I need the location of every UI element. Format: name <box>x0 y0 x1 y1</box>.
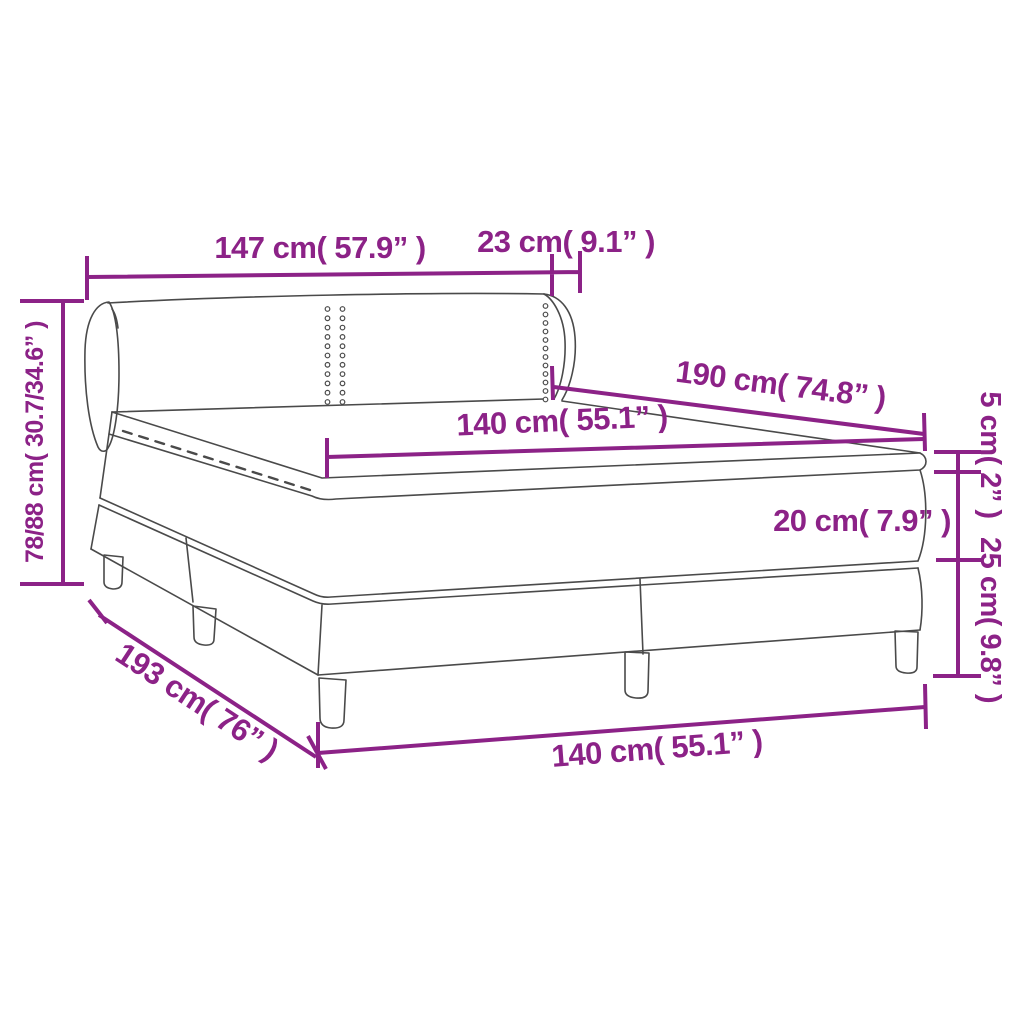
dim-height-stack-bracket <box>933 452 981 676</box>
stud-dot <box>340 325 345 330</box>
stud-dot <box>543 372 548 377</box>
stud-dot <box>340 335 345 340</box>
stud-dot <box>325 316 330 321</box>
base-front-seam <box>640 579 643 654</box>
stud-dot <box>543 355 548 360</box>
label-base-height: 25 cm( 9.8” ) <box>974 537 1006 703</box>
bed-leg <box>625 652 649 698</box>
label-headboard-width: 147 cm( 57.9” ) <box>214 230 425 265</box>
stud-dot <box>340 372 345 377</box>
stud-dot <box>340 381 345 386</box>
label-topper-height: 5 cm( 2” ) <box>974 391 1006 518</box>
stud-dot <box>543 346 548 351</box>
stud-dot <box>543 397 548 402</box>
stud-dot <box>325 353 330 358</box>
stud-dot <box>340 344 345 349</box>
stud-dot <box>543 321 548 326</box>
stud-dot <box>325 325 330 330</box>
stud-dot <box>340 363 345 368</box>
base-left-seam <box>186 538 193 602</box>
bed-leg <box>104 555 123 589</box>
bed-leg <box>895 631 918 673</box>
bed-dimension-diagram: 147 cm( 57.9” ) 23 cm( 9.1” ) 78/88 cm( … <box>0 0 1024 1024</box>
dimension-labels: 147 cm( 57.9” ) 23 cm( 9.1” ) 78/88 cm( … <box>21 224 1006 774</box>
base-left-end-edge <box>91 505 99 549</box>
label-wing-depth: 23 cm( 9.1” ) <box>477 224 655 259</box>
headboard-left-wing <box>85 302 119 451</box>
stud-dot <box>325 335 330 340</box>
topper-zipper-dashes <box>123 431 310 490</box>
mattress-left-end-edge <box>100 434 109 498</box>
stud-dot <box>340 316 345 321</box>
nailhead-trim-studs <box>325 304 548 405</box>
label-mattress-width: 140 cm( 55.1” ) <box>456 398 669 442</box>
stud-dot <box>340 400 345 405</box>
base-bottom-front-edge <box>318 630 920 675</box>
stud-dot <box>325 372 330 377</box>
stud-dot <box>325 390 330 395</box>
label-base-width: 140 cm( 55.1” ) <box>550 723 763 774</box>
stud-dot <box>325 363 330 368</box>
stud-dot <box>325 344 330 349</box>
stud-dot <box>543 312 548 317</box>
dim-total-length-line <box>89 600 326 769</box>
stud-dot <box>543 304 548 309</box>
stud-dot <box>340 307 345 312</box>
bed-leg <box>319 678 346 728</box>
base-right-edge <box>918 568 922 630</box>
stud-dot <box>543 389 548 394</box>
stud-dot <box>543 338 548 343</box>
label-mattress-height: 20 cm( 7.9” ) <box>773 503 951 538</box>
stud-dot <box>543 329 548 334</box>
stud-dot <box>543 363 548 368</box>
stud-dot <box>325 381 330 386</box>
stud-dot <box>340 353 345 358</box>
stud-dot <box>340 390 345 395</box>
label-total-length: 193 cm( 76” ) <box>110 636 285 767</box>
dim-mattress-width-line <box>327 438 924 478</box>
stud-dot <box>325 307 330 312</box>
headboard-top-edge <box>108 293 544 303</box>
label-total-height: 78/88 cm( 30.7/34.6” ) <box>21 321 49 563</box>
diagram-canvas: 147 cm( 57.9” ) 23 cm( 9.1” ) 78/88 cm( … <box>0 0 1024 1024</box>
base-front-corner-edge <box>318 605 322 675</box>
stud-dot <box>543 380 548 385</box>
stud-dot <box>325 400 330 405</box>
